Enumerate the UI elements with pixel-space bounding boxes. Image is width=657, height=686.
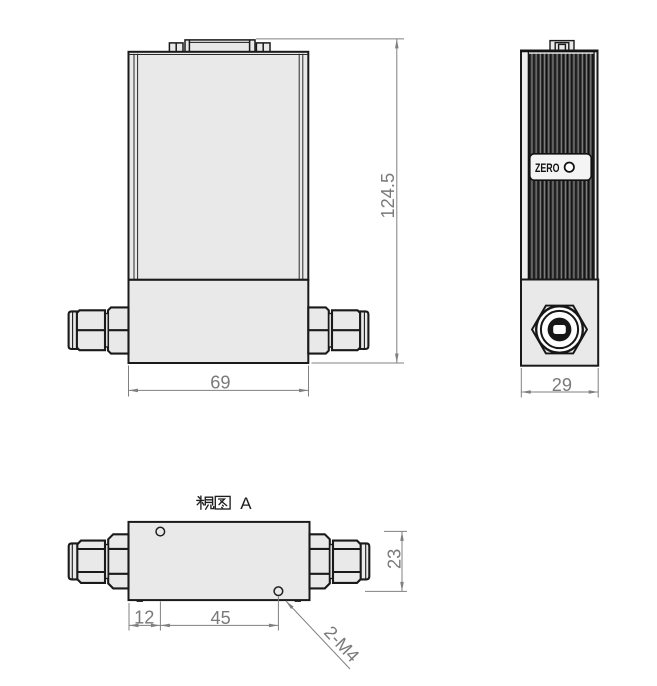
svg-text:29: 29 <box>552 375 572 395</box>
svg-text:69: 69 <box>210 373 230 393</box>
svg-text:12: 12 <box>134 607 154 627</box>
svg-text:23: 23 <box>384 549 404 569</box>
svg-text:A: A <box>240 494 252 513</box>
svg-text:ZERO: ZERO <box>535 161 560 175</box>
svg-text:124.5: 124.5 <box>378 173 398 219</box>
svg-text:45: 45 <box>210 608 230 628</box>
